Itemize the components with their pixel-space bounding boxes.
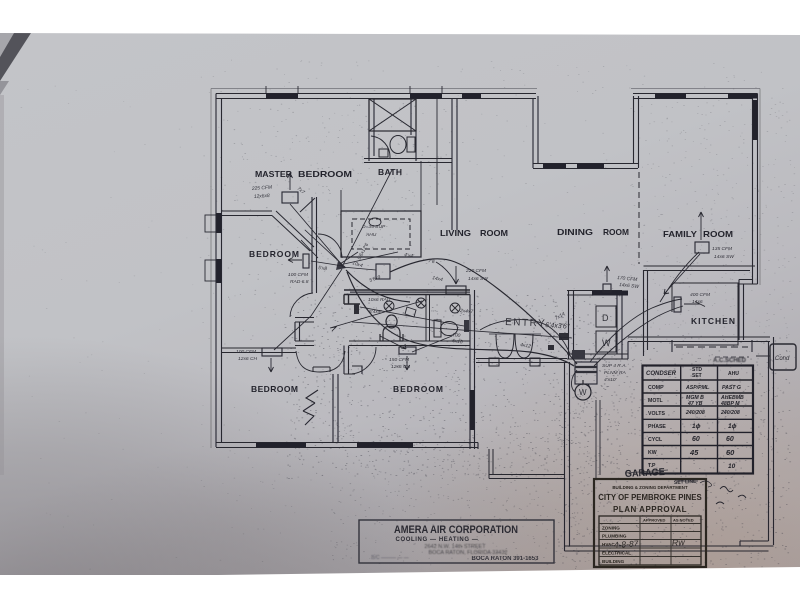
svg-text:CYCL: CYCL	[648, 437, 663, 443]
svg-text:4'x4': 4'x4'	[404, 252, 416, 260]
svg-text:PHASE: PHASE	[648, 424, 666, 430]
svg-text:135 CFM: 135 CFM	[712, 246, 733, 252]
svg-text:12x6 CH: 12x6 CH	[391, 364, 410, 370]
svg-text:A.C.SCHED: A.C.SCHED	[713, 358, 747, 364]
svg-text:14x6: 14x6	[692, 299, 703, 305]
svg-text:PLNM RA: PLNM RA	[604, 370, 626, 376]
svg-text:12x6 CH: 12x6 CH	[238, 356, 257, 362]
svg-text:10x6 RAD: 10x6 RAD	[368, 297, 391, 303]
svg-text:COOLING — HEATING —: COOLING — HEATING —	[396, 537, 479, 543]
svg-text:SET: SET	[692, 373, 702, 379]
svg-text:VOLTS: VOLTS	[648, 411, 665, 417]
svg-text:FAMILYROOM: FAMILYROOM	[663, 229, 733, 239]
svg-text:AS NOTED: AS NOTED	[673, 518, 694, 523]
svg-text:D: D	[602, 313, 609, 323]
svg-text:48BP M: 48BP M	[720, 401, 740, 407]
svg-text:APPROVED: APPROVED	[643, 518, 666, 523]
svg-text:PAST G: PAST G	[722, 385, 741, 391]
svg-text:14x6 SW: 14x6 SW	[468, 276, 488, 282]
svg-text:7x7: 7x7	[296, 186, 306, 196]
svg-text:T.P: T.P	[648, 463, 656, 469]
svg-text:KITCHEN: KITCHEN	[691, 316, 735, 326]
svg-text:Cond: Cond	[775, 356, 790, 362]
svg-text:1ϕ: 1ϕ	[728, 423, 737, 430]
svg-text:AHU: AHU	[728, 371, 739, 377]
svg-text:D=35 SUP: D=35 SUP	[362, 224, 386, 230]
svg-text:100 CFM: 100 CFM	[236, 349, 257, 355]
svg-text:COMP: COMP	[648, 385, 664, 391]
svg-text:SUP 4 R.A.: SUP 4 R.A.	[602, 363, 627, 369]
svg-text:4-8-87: 4-8-87	[613, 538, 638, 550]
svg-text:DININGROOM: DININGROOM	[557, 227, 629, 237]
svg-text:14x6 SW: 14x6 SW	[714, 254, 734, 260]
svg-text:60: 60	[726, 448, 735, 457]
svg-text:BUILDING: BUILDING	[602, 559, 625, 564]
svg-text:4'x10': 4'x10'	[604, 377, 618, 383]
svg-text:CONDSER: CONDSER	[646, 371, 677, 377]
svg-text:5'4x5': 5'4x5'	[369, 309, 383, 315]
svg-text:47 YB: 47 YB	[687, 401, 703, 407]
svg-text:9'6x12'6: 9'6x12'6	[356, 242, 370, 261]
svg-text:5'x8: 5'x8	[318, 265, 328, 272]
svg-text:5'6x9: 5'6x9	[369, 274, 382, 284]
svg-text:Rw: Rw	[671, 537, 685, 548]
svg-text:BEDROOM: BEDROOM	[251, 384, 298, 394]
svg-text:BATH: BATH	[378, 167, 402, 177]
svg-text:BOCA RATON 391-1653: BOCA RATON 391-1653	[472, 556, 540, 562]
svg-text:14x4: 14x4	[432, 275, 444, 283]
svg-text:10: 10	[728, 463, 736, 470]
svg-text:7x14: 7x14	[554, 311, 566, 322]
svg-text:14x6 SW: 14x6 SW	[619, 282, 640, 290]
svg-text:170 CFM: 170 CFM	[617, 275, 639, 283]
svg-text:100 CFM: 100 CFM	[288, 272, 309, 278]
svg-text:AMERA AIR CORPORATION: AMERA AIR CORPORATION	[394, 524, 518, 536]
svg-text:ELECTRICAL: ELECTRICAL	[602, 551, 631, 556]
svg-text:ENTRY: ENTRY	[505, 317, 547, 329]
svg-text:PLUMBING: PLUMBING	[602, 534, 627, 539]
svg-text:W: W	[579, 388, 587, 397]
svg-text:150 CFM: 150 CFM	[389, 357, 410, 363]
svg-text:KW: KW	[648, 450, 657, 456]
svg-text:240/208: 240/208	[720, 410, 740, 416]
svg-text:MOTL: MOTL	[648, 398, 664, 404]
svg-text:BEDROOM: BEDROOM	[393, 384, 443, 394]
svg-text:100: 100	[452, 332, 461, 339]
svg-text:CITY OF PEMBROKE PINES: CITY OF PEMBROKE PINES	[598, 493, 701, 502]
svg-text:1ϕ: 1ϕ	[692, 423, 701, 430]
svg-text:AHU: AHU	[365, 232, 377, 238]
svg-text:2x4x7: 2x4x7	[459, 308, 474, 315]
svg-text:225 CFM: 225 CFM	[251, 185, 273, 193]
svg-text:W: W	[602, 338, 611, 348]
svg-text:ASP/PML: ASP/PML	[685, 385, 709, 391]
svg-text:240/208: 240/208	[685, 410, 705, 416]
svg-text:60: 60	[726, 436, 734, 443]
svg-text:6'4x3'6": 6'4x3'6"	[545, 322, 570, 331]
svg-text:LIVINGROOM: LIVINGROOM	[440, 228, 508, 238]
svg-text:SET LINE: SET LINE	[674, 479, 697, 486]
svg-text:4x12: 4x12	[520, 342, 532, 350]
svg-text:MASTERBEDROOM: MASTERBEDROOM	[255, 169, 352, 179]
svg-text:45: 45	[689, 448, 699, 457]
svg-text:B/C ——— — —: B/C ——— — —	[371, 555, 409, 561]
svg-text:6x10: 6x10	[452, 338, 464, 345]
svg-text:12x6x8: 12x6x8	[254, 193, 270, 200]
svg-text:ZONING: ZONING	[602, 526, 620, 531]
svg-text:400 CFM: 400 CFM	[690, 292, 711, 298]
svg-text:60: 60	[692, 436, 700, 443]
svg-text:BEDROOM: BEDROOM	[249, 249, 299, 259]
svg-text:PLAN APPROVAL: PLAN APPROVAL	[613, 505, 687, 514]
svg-text:RAD 6.8: RAD 6.8	[290, 279, 309, 285]
svg-text:220 CFM: 220 CFM	[465, 268, 487, 274]
